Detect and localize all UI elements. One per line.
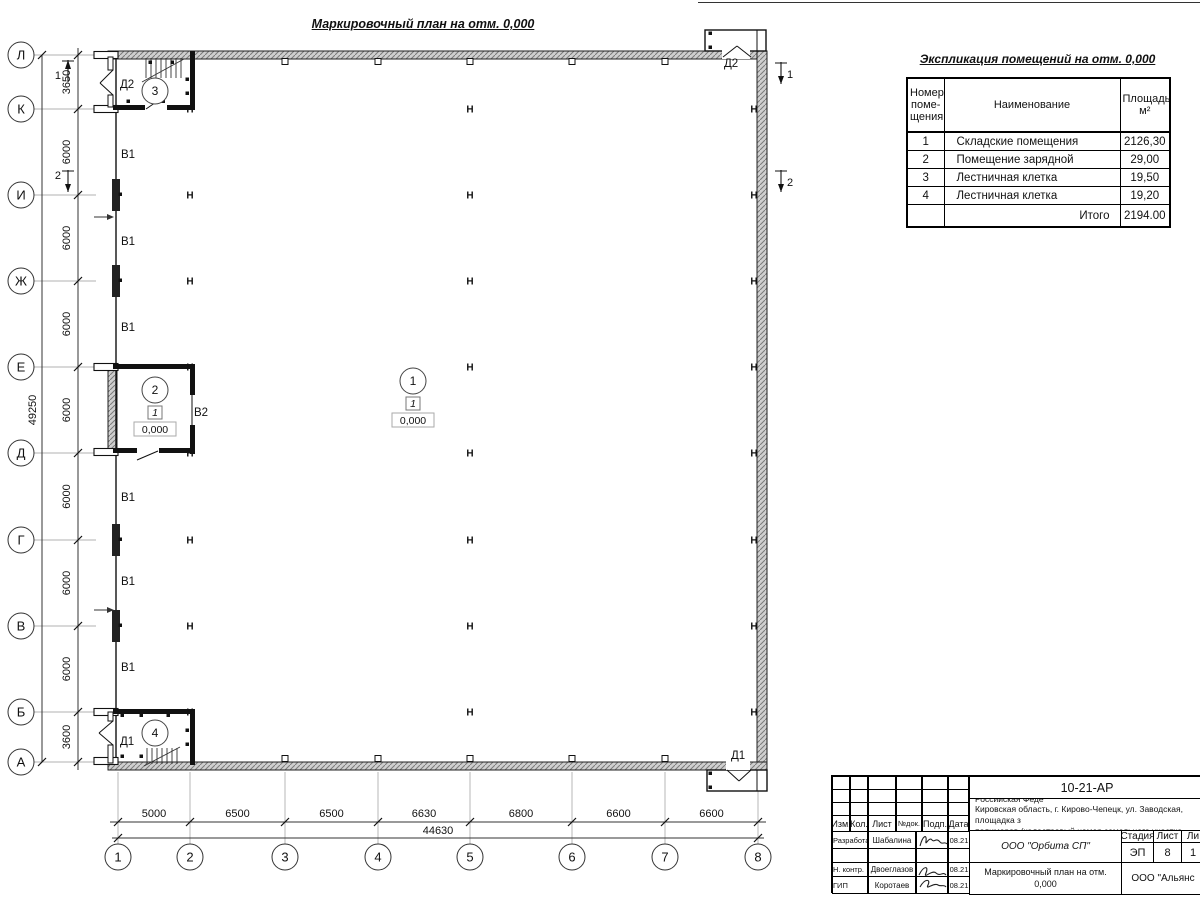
dim-label: 6000 [61,140,73,164]
project-description: Здание склада АБК, расположенное по адре… [969,798,1200,831]
axis-number: 3 [281,850,288,865]
room-area-cell: 19,20 [1120,187,1170,205]
room-markers: 110,000210,00034 [134,78,434,746]
axis-number: 2 [186,850,193,865]
table-row: 4Лестничная клетка19,20 [907,187,1170,205]
section-mark-label: 1 [787,69,793,81]
door-label: Д2 [724,58,738,70]
staff-role-cell: Н. контр. [832,862,868,877]
staff-name-cell: Шабалина [868,831,916,849]
total-row: Итого 2194.00 [907,205,1170,228]
dim-label: 6000 [61,571,73,595]
change-log-empty-cell [868,789,896,803]
col-header-area: Площадь, м² [1120,78,1170,132]
signature-squiggle [918,833,948,849]
sheet-value: 8 [1153,842,1182,863]
room-name-cell: Лестничная клетка [944,169,1120,187]
axis-number: 5 [466,850,473,865]
axis-letter: Г [17,533,24,548]
staff-date-cell: 08.21 [948,862,970,877]
section-mark-label: 1 [55,70,61,82]
steel-column-symbol: Н [466,191,473,202]
door-label: Д1 [731,750,745,762]
dim-label: 6000 [61,312,73,336]
door-label: Д1 [120,736,134,748]
gate-label: В1 [121,322,135,334]
change-log-empty-cell [948,802,969,816]
room-name-cell: Помещение зарядной [944,151,1120,169]
steel-column-symbol: Н [186,105,193,116]
dim-label: 6000 [61,657,73,681]
steel-column-symbol: Н [466,105,473,116]
description-line: Кировская область, г. Кирово-Чепецк, ул.… [975,804,1183,825]
change-log-empty-cell [948,789,969,803]
col-header-number: Номер поме- щения [907,78,944,132]
staff-name-cell: Двоеглазов [868,862,916,877]
gate-label: В1 [121,662,135,674]
dim-total-label: 44630 [423,825,454,837]
gate-label: В2 [194,407,208,419]
change-log-empty-cell [850,789,868,803]
dim-label: 3650 [61,70,73,94]
room-schedule: Экспликация помещений на отм. 0,000 Номе… [906,52,1169,228]
room-number: 2 [152,383,159,397]
axis-letter: Д [17,446,26,461]
axis-letter: Ж [15,274,27,289]
doc-number: 10-21-АР [969,776,1200,799]
steel-column-symbol: Н [186,363,193,374]
gate-label: В1 [121,149,135,161]
change-log-empty-cell [850,776,868,790]
gate-label: В1 [121,576,135,588]
change-log-header-cell: Кол. [850,815,868,832]
change-log-empty-cell [896,789,922,803]
room-number: 1 [410,374,417,388]
room-schedule-grid: Номер поме- щения Наименование Площадь, … [906,77,1171,228]
room-name-cell: Лестничная клетка [944,187,1120,205]
company-name: ООО "Альянс [1121,862,1200,895]
table-row: 1Складские помещения2126,30 [907,132,1170,151]
dim-total-label: 49250 [27,395,39,426]
dim-label: 6000 [61,398,73,422]
table-row: 3Лестничная клетка19,50 [907,169,1170,187]
room-number-cell: 4 [907,187,944,205]
sheets-value: 1 [1181,842,1200,863]
staff-name-cell: Коротаев [868,876,916,894]
description-line: Здание склада АБК, расположенное по адре… [975,798,1163,804]
axis-letter: Е [17,360,26,375]
signature-squiggle [916,863,948,893]
axis-number: 6 [568,850,575,865]
dim-label: 5000 [142,808,166,820]
steel-column-symbol: Н [466,363,473,374]
change-log-header-cell: Подп. [922,815,948,832]
staff-role-cell: ГИП [832,876,868,894]
staff-date-cell [948,848,970,863]
steel-column-symbol: Н [186,449,193,460]
steel-column-symbol: Н [186,191,193,202]
gate-label: В1 [121,492,135,504]
dim-label: 6800 [509,808,533,820]
change-log-empty-cell [832,776,850,790]
steel-column-symbol: Н [466,708,473,719]
steel-column-symbol: Н [750,449,757,460]
dimensions: 5000650065006630680066006600446303650600… [27,48,766,842]
change-log-empty-cell [868,802,896,816]
steel-column-symbol: Н [750,536,757,547]
steel-column-symbol: Н [750,277,757,288]
section-marks: 1212 [55,60,793,192]
dim-label: 6500 [319,808,343,820]
change-log-header-cell: Дата [948,815,969,832]
floor-marker: 1 [152,407,158,419]
section-mark-label: 2 [787,177,793,189]
axis-number: 1 [114,850,121,865]
steel-column-symbol: Н [186,708,193,719]
steel-column-symbol: Н [466,622,473,633]
drawing-sheet: Маркировочный план на отм. 0,000 ННННННН… [0,0,1200,900]
steel-column-symbol: Н [466,449,473,460]
staff-date-cell: 08.21 [948,831,970,849]
room-number: 4 [152,726,159,740]
dim-label: 6500 [225,808,249,820]
col-header-name: Наименование [944,78,1120,132]
floor-marker: 1 [410,398,416,410]
stage-value: ЭП [1121,842,1154,863]
room-area-cell: 19,50 [1120,169,1170,187]
axis-letter: К [17,102,25,117]
steel-column-symbol: Н [466,536,473,547]
gate-label: В1 [121,236,135,248]
room-name-cell: Складские помещения [944,132,1120,151]
axis-number: 8 [754,850,761,865]
change-log-empty-cell [868,776,896,790]
axis-letter: А [17,755,26,770]
axis-extension-lines [34,55,758,846]
room-area-cell: 29,00 [1120,151,1170,169]
change-log-header-cell: №док. [896,815,922,832]
change-log-empty-cell [896,776,922,790]
staff-name-cell [868,848,916,863]
change-log-header-cell: Изм. [832,815,850,832]
dim-label: 6600 [606,808,630,820]
section-mark-label: 2 [55,170,61,182]
staff-signature-cell [916,848,948,863]
axis-letter: В [17,619,26,634]
level-marker: 0,000 [400,415,426,427]
change-log-empty-cell [922,789,948,803]
steel-column-symbol: Н [186,536,193,547]
room-schedule-title: Экспликация помещений на отм. 0,000 [906,52,1169,66]
change-log-empty-cell [832,802,850,816]
change-log-empty-cell [922,802,948,816]
entrance-arrow [107,214,114,220]
steel-column-symbol: Н [750,622,757,633]
dim-label: 6000 [61,226,73,250]
room-number: 3 [152,84,159,98]
steel-column-symbol: Н [750,708,757,719]
total-empty-cell [907,205,944,228]
axis-number: 4 [374,850,381,865]
change-log-empty-cell [948,776,969,790]
steel-column-symbol: Н [186,622,193,633]
axis-letter: И [16,188,25,203]
dim-label: 6600 [699,808,723,820]
steel-column-symbol: Н [750,191,757,202]
staff-role-cell [832,848,868,863]
room-number-cell: 1 [907,132,944,151]
change-log-empty-cell [850,802,868,816]
room-number-cell: 3 [907,169,944,187]
dim-label: 6630 [412,808,436,820]
axis-letter: Б [17,705,26,720]
table-row: 2Помещение зарядной29,00 [907,151,1170,169]
change-log-empty-cell [922,776,948,790]
change-log-header-cell: Лист [868,815,896,832]
change-log-empty-cell [896,802,922,816]
change-log-empty-cell [832,789,850,803]
room-area-cell: 2126,30 [1120,132,1170,151]
title-block: 10-21-АР Здание склада АБК, расположенно… [831,775,1200,893]
room-number-cell: 2 [907,151,944,169]
design-org: ООО "Орбита СП" [969,830,1122,863]
door-label: Д2 [120,79,134,91]
steel-column-symbol: Н [750,105,757,116]
level-marker: 0,000 [142,424,168,436]
steel-columns: НННННННННННННННННННННННН [186,105,757,719]
dim-label: 6000 [61,484,73,508]
opening-labels: В1В1В1В2В1В1В1Д2Д2Д1Д1 [120,58,745,762]
axis-number: 7 [661,850,668,865]
steel-column-symbol: Н [466,277,473,288]
staff-date-cell: 08.21 [948,876,970,894]
dim-label: 3600 [61,725,73,749]
axis-letter: Л [17,48,26,63]
staff-role-cell: Разработал [832,831,868,849]
steel-column-symbol: Н [750,363,757,374]
total-label: Итого [944,205,1120,228]
total-value: 2194.00 [1120,205,1170,228]
drawing-name: Маркировочный план на отм. 0,000 [969,862,1122,895]
steel-column-symbol: Н [186,277,193,288]
